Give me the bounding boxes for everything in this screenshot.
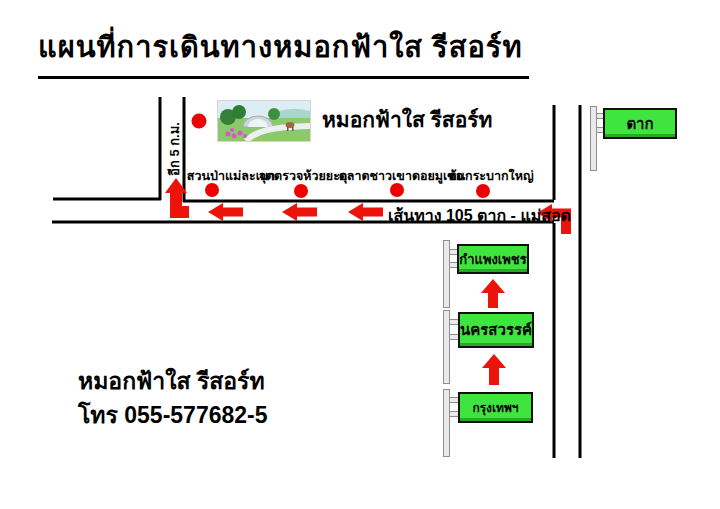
poi-label-huai-ya-u-checkpoint: จุดตรวจห้วยยะอุ — [259, 166, 348, 186]
sign-plate-kamphaeng-phet: กำแพงเพชร — [457, 244, 529, 274]
northbound-arrow-icon-2 — [482, 354, 506, 385]
westbound-arrow-icon-2 — [282, 203, 317, 221]
resort-logo-image — [217, 100, 311, 142]
map-page: แผนที่การเดินทางหมอกฟ้าใส รีสอร์ท — [0, 0, 720, 509]
sign-plate-nakhon-sawan: นครสวรรค์ — [458, 312, 534, 348]
poi-dot-icon-4 — [476, 184, 490, 198]
route-105-label: เส้นทาง 105 ตาก - แม่สอด — [388, 203, 571, 228]
poi-label-doi-musoe-market: ตลาดชาวเขาดอยมูเซอ — [339, 166, 464, 186]
northbound-arrow-icon-1 — [481, 279, 505, 308]
westbound-arrow-icon-1 — [208, 203, 243, 221]
resort-name-label: หมอกฟ้าใส รีสอร์ท — [322, 103, 492, 136]
footer-resort-name: หมอกฟ้าใส รีสอร์ท — [78, 363, 265, 399]
footer-phone-number: โทร 055-577682-5 — [78, 397, 268, 433]
poi-dot-icon-2 — [294, 184, 308, 198]
resort-marker-dot-icon — [192, 114, 207, 129]
sign-plate-tak: ตาก — [603, 108, 677, 139]
westbound-arrow-icon-3 — [348, 203, 383, 221]
poi-label-big-krabak-tree: ต้นกระบากใหญ่ — [448, 166, 533, 186]
sign-plate-bangkok: กรุงเทพฯ — [458, 392, 533, 423]
distance-label: อีก 5 ก.ม. — [164, 113, 180, 185]
